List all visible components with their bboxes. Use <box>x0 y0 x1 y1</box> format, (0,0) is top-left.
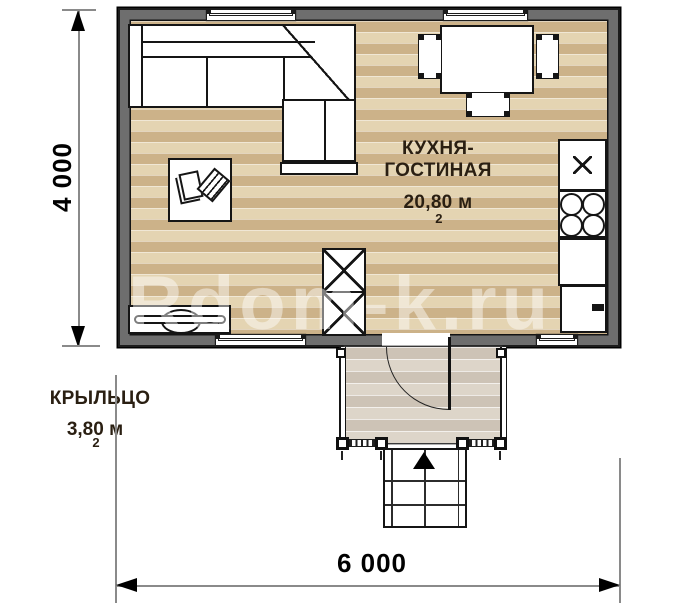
window-cap <box>443 9 448 14</box>
window-cap <box>536 334 541 339</box>
window-cap <box>215 334 220 339</box>
porch-post-icon <box>496 348 506 358</box>
arrow-up-icon <box>71 10 85 31</box>
room-name-line2: ГОСТИНАЯ <box>358 160 518 182</box>
window-frame <box>539 338 575 341</box>
floor-plan-canvas: 4 000 <box>0 0 690 610</box>
window-cap <box>291 9 296 14</box>
sink-x-mark <box>573 156 592 174</box>
refrigerator-icon <box>560 285 607 333</box>
burner-icon <box>582 193 605 216</box>
porch-railing-segment <box>349 439 375 447</box>
arrow-right-icon <box>599 578 620 592</box>
window-cap <box>573 334 578 339</box>
room-label-kitchen-living: КУХНЯ- ГОСТИНАЯ 20,80 м2 <box>358 138 518 236</box>
dimension-height-label: 4 000 <box>47 115 77 239</box>
kitchen-counter-icon <box>558 238 607 286</box>
arrow-down-icon <box>71 326 85 347</box>
stair-direction-arrow-icon <box>413 452 435 469</box>
porch-post-icon <box>336 437 349 450</box>
porch-railing-left <box>339 347 346 447</box>
window-frame <box>218 338 303 341</box>
step-stringer <box>458 450 460 526</box>
kitchen-sink-icon <box>558 139 607 191</box>
cabinet-x-panel <box>322 291 366 336</box>
dining-table-icon <box>440 25 534 94</box>
porch-post-icon <box>494 437 507 450</box>
room-label-porch: КРЫЛЬЦО <box>20 388 180 410</box>
book-icon <box>196 168 230 203</box>
window-frame <box>209 13 293 16</box>
window-icon <box>444 10 527 20</box>
sofa-corner-section <box>282 24 356 108</box>
post-tick <box>499 451 501 460</box>
porch-post-icon <box>336 348 346 358</box>
tv-screen-icon <box>134 315 226 324</box>
burner-icon <box>560 214 583 237</box>
porch-railing-segment <box>469 439 494 447</box>
sofa-chaise-section <box>282 99 356 162</box>
sofa-line <box>206 56 208 106</box>
square-exponent: 2 <box>359 208 519 230</box>
room-name-line1: КУХНЯ- <box>358 138 518 160</box>
dimension-width-label: 6 000 <box>310 548 434 579</box>
step-stringer <box>391 450 393 526</box>
post-tick <box>341 451 343 460</box>
window-frame <box>446 13 525 16</box>
coffee-table-icon <box>168 158 232 222</box>
window-cap <box>523 9 528 14</box>
extension-line <box>115 375 117 603</box>
cabinet-x-panel <box>322 248 366 293</box>
window-icon <box>207 10 295 20</box>
cabinet-icon <box>322 248 366 336</box>
fridge-handle <box>592 304 604 311</box>
porch-railing-right <box>500 347 507 447</box>
tv-stand-icon <box>128 305 231 334</box>
window-icon <box>216 335 305 345</box>
door-leaf-icon <box>448 337 451 410</box>
chair-icon <box>536 34 559 79</box>
sofa-line <box>324 101 326 160</box>
dimension-line <box>78 10 80 347</box>
sofa-armrest <box>280 162 358 175</box>
dimension-line <box>116 585 620 587</box>
burner-icon <box>560 193 583 216</box>
window-cap <box>301 334 306 339</box>
post-tick <box>380 451 382 460</box>
chair-icon <box>418 34 442 79</box>
square-exponent: 2 <box>16 435 176 450</box>
window-cap <box>206 9 211 14</box>
window-icon <box>537 335 577 345</box>
house-walls: КУХНЯ- ГОСТИНАЯ 20,80 м2 <box>118 8 620 347</box>
entrance-steps-icon <box>383 448 467 528</box>
stove-icon <box>558 190 607 238</box>
extension-tick <box>62 9 96 11</box>
porch-area: 3,80 м2 <box>15 419 175 456</box>
arrow-left-icon <box>116 578 137 592</box>
extension-tick <box>62 345 100 347</box>
room-area: 20,80 м2 <box>358 192 518 236</box>
chair-icon <box>466 92 510 117</box>
burner-icon <box>582 214 605 237</box>
door-opening <box>382 333 450 347</box>
